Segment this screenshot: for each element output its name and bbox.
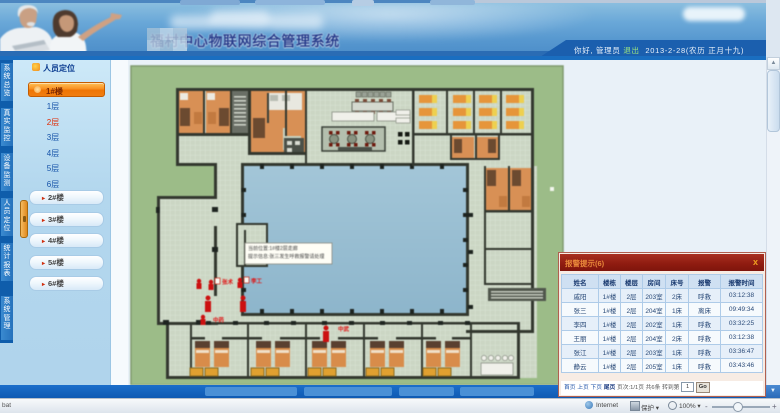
svg-text:当前位置:1#楼2层走廊: 当前位置:1#楼2层走廊	[248, 245, 298, 252]
svg-text:提示信息:张三发生呼救报警请处理: 提示信息:张三发生呼救报警请处理	[248, 253, 324, 260]
svg-text:中武: 中武	[338, 325, 350, 333]
svg-text:李工: 李工	[250, 277, 263, 285]
svg-text:张术: 张术	[222, 278, 234, 286]
svg-text:中药: 中药	[213, 316, 225, 324]
